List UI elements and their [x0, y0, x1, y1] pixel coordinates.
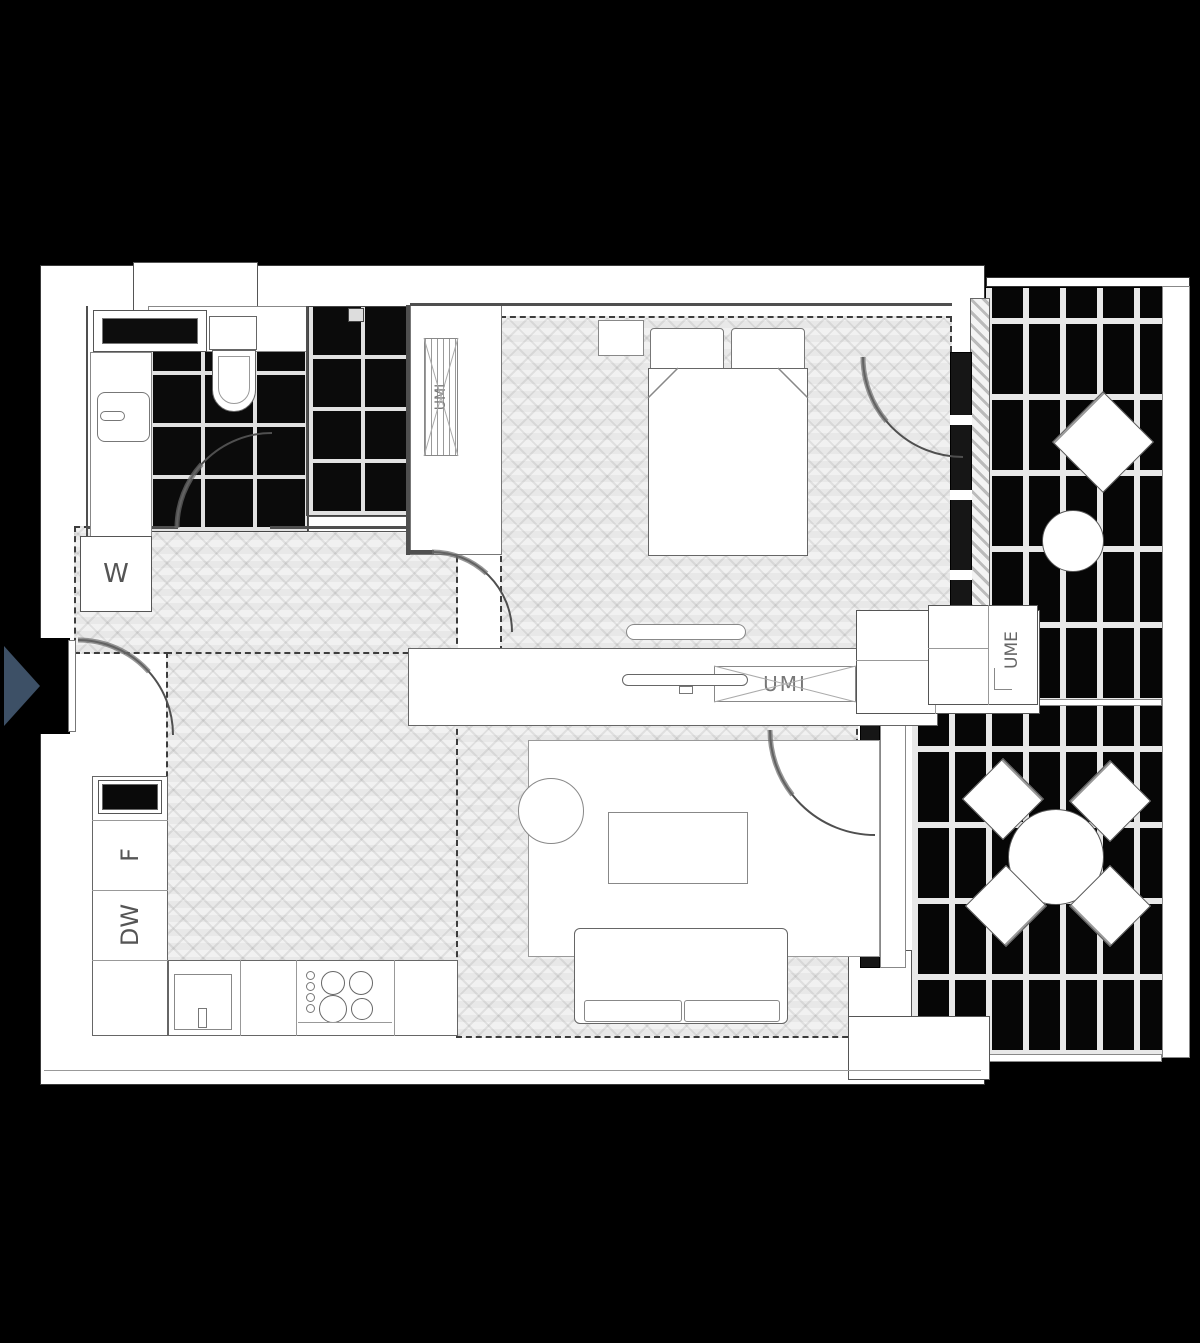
toilet-seat-line [218, 356, 250, 404]
sofa-cushion-right [684, 1000, 780, 1022]
bathroom-wall-bottom-right [270, 526, 412, 529]
bedroom-console [626, 624, 746, 640]
shower-head [348, 308, 364, 322]
stove-knob-3 [306, 993, 315, 1002]
stove [298, 962, 392, 1034]
media-umi-label-text: UMI [759, 672, 811, 696]
sofa-cushion-left [584, 1000, 682, 1022]
sink-faucet [100, 411, 125, 421]
kitchen-sink-faucet [198, 1008, 207, 1028]
bed-mattress [648, 368, 808, 556]
oven [98, 780, 162, 814]
balcony-right-band [1162, 286, 1190, 1058]
stove-knob-4 [306, 1004, 315, 1013]
toilet-tank [209, 316, 257, 350]
bedroom-window-mullion-2 [950, 490, 972, 500]
washer-label: W [80, 536, 152, 612]
closet-bottom-wall-stub [406, 550, 434, 554]
counter-div-1 [240, 960, 241, 1036]
burner-2 [349, 971, 373, 995]
balcony-top-edge [986, 277, 1190, 287]
counter-div-2 [296, 960, 297, 1036]
balcony-lounge-chair [1042, 510, 1104, 572]
burner-4 [351, 998, 373, 1020]
stove-knob-2 [306, 982, 315, 991]
burner-3 [319, 995, 347, 1023]
shower-glass-partition [306, 306, 308, 516]
bottom-wall-inner-line [44, 1070, 981, 1071]
bedroom-balcony-wall-hatch [970, 298, 990, 646]
wardrobe-umi-label: UMI [416, 362, 466, 432]
bedroom-top-wall [410, 303, 952, 306]
dishwasher-label: DW [95, 887, 165, 963]
fridge-label: F [95, 817, 165, 893]
ume-unit-cross-h [928, 648, 988, 649]
pillow-right [731, 328, 805, 372]
floor-plan-canvas: UME W F DW UMI [0, 0, 1200, 1343]
bedroom-window-mullion-3 [950, 570, 972, 580]
burner-1 [321, 971, 345, 995]
tv-stand [679, 686, 693, 694]
ume-label: UME [987, 625, 1037, 675]
entry-threshold [68, 640, 76, 732]
coffee-table [608, 812, 748, 884]
media-umi-label: UMI [714, 666, 856, 702]
stove-knob-1 [306, 971, 315, 980]
shower-floor [308, 306, 410, 516]
vanity [90, 352, 152, 548]
entry-arrow [4, 646, 40, 726]
shower-curb [308, 516, 410, 532]
side-table [518, 778, 584, 844]
counter-div-3 [394, 960, 395, 1036]
mirror-cabinet-glass [100, 316, 200, 346]
living-window-frame-band [880, 712, 906, 968]
se-wall-line-h1 [856, 660, 936, 661]
pillow-left [650, 328, 724, 372]
stove-front-line [298, 1022, 392, 1023]
entry-gap [36, 638, 70, 734]
bedroom-window-mullion-1 [950, 415, 972, 425]
bathroom-wall-left [86, 306, 88, 552]
nightstand [598, 320, 644, 356]
